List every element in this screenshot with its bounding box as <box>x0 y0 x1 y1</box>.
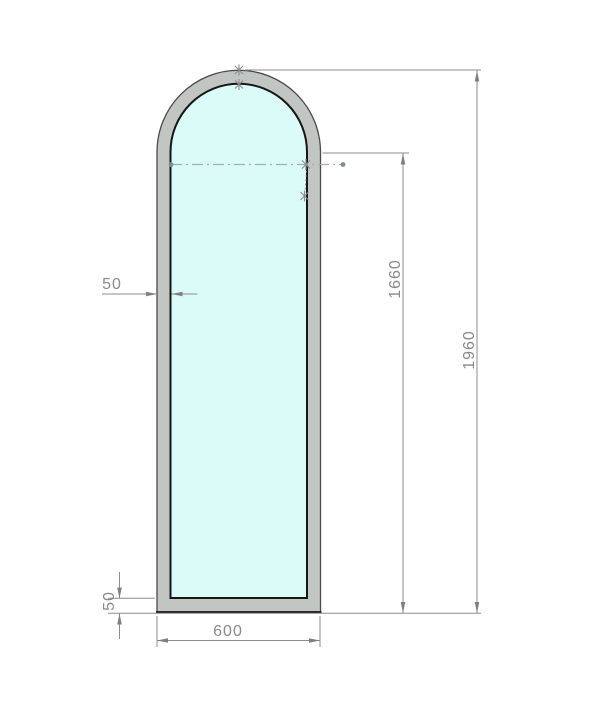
dim-text-bottom-rail: 50 <box>101 591 118 611</box>
arrow-spring-top <box>401 154 406 165</box>
dim-text-frame-thickness: 50 <box>102 276 122 293</box>
centerline-end-dot-left <box>169 162 174 167</box>
arrow-width-left <box>157 638 168 643</box>
drawing-canvas: 50 600 1660 1960 50 <box>0 0 601 728</box>
dim-text-width: 600 <box>213 623 243 640</box>
dim-text-overall-height: 1960 <box>461 330 478 370</box>
arrow-width-right <box>309 638 320 643</box>
elevation-drawing: 50 600 1660 1960 50 <box>0 0 601 728</box>
dim-text-spring-height: 1660 <box>387 259 404 299</box>
arrow-overall-bottom <box>475 602 480 613</box>
arrow-spring-bottom <box>401 602 406 613</box>
glass-panel <box>171 84 308 598</box>
centerline-end-dot-right <box>341 162 346 167</box>
arrow-rail-up <box>117 614 122 625</box>
arrow-thickness-right <box>146 292 157 297</box>
arrow-overall-top <box>475 71 480 82</box>
